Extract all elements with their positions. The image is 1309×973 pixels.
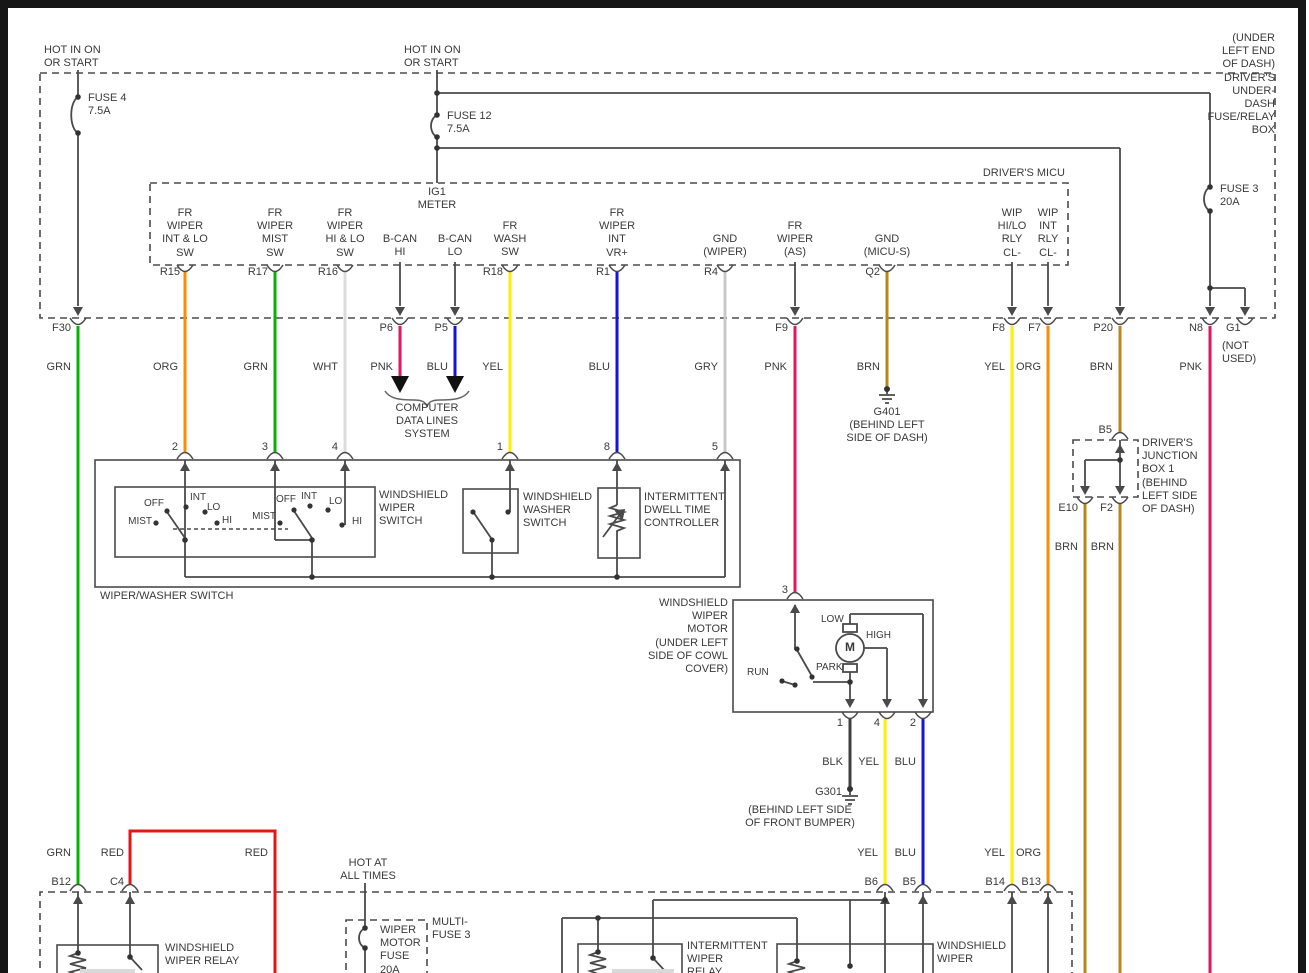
pin-number: 2 [172,441,178,454]
pin-number: 4 [874,717,880,730]
connector-id: R18 [483,266,503,279]
connector-id: N8 [1189,322,1203,335]
wiper-motor-label: WINDSHIELD WIPER MOTOR (UNDER LEFT SIDE … [648,597,728,676]
connector-id: F30 [52,322,71,335]
colored-wires [78,272,1210,973]
switch-pos-off: OFF [144,498,164,509]
connector-id: R15 [160,266,180,279]
motor-park-label: PARK [816,662,843,673]
wire-color-label: GRN [244,361,268,374]
wire-color-label: BLU [895,756,916,769]
switch-pos-mist: MIST [252,511,276,522]
wire-color-label: YEL [857,847,878,860]
pin-number: 3 [262,441,268,454]
connector-id: B6 [865,876,878,889]
wiring-diagram-lines [0,0,1309,973]
wiring-diagram-page: HOT IN ON OR START HOT IN ON OR START (U… [0,0,1309,973]
motor-m-symbol: M [845,640,855,654]
switch-pos-hi: HI [222,515,232,526]
micu-pin-label: FR WIPER (AS) [777,220,813,260]
connector-id: F7 [1028,322,1041,335]
wire-color-label: BLK [822,756,843,769]
pin-number: 1 [497,441,503,454]
windshield-wiper-switch-label: WINDSHIELD WIPER SWITCH [379,489,448,529]
wire-color-label: BLU [427,361,448,374]
wire-color-label: YEL [482,361,503,374]
hot-at-all-times-label: HOT AT ALL TIMES [340,857,396,883]
wire-color-label: BRN [857,361,880,374]
connector-id: G1 [1226,322,1241,335]
wire-color-label: BLU [589,361,610,374]
connector-id: C4 [110,876,124,889]
windshield-wiper-relay2-label: WINDSHIELD WIPER [937,940,1006,966]
g301-ground-id: G301 [815,786,842,799]
connector-id: B12 [51,876,71,889]
wire-color-label: BRN [1090,361,1113,374]
wire-color-label: ORG [1016,847,1041,860]
hot-in-on-mid-label: HOT IN ON OR START [404,44,461,70]
connector-id: R17 [248,266,268,279]
wire-color-label: YEL [984,361,1005,374]
switch-pos-int: INT [301,491,317,502]
pin-number: 3 [782,584,788,597]
wire-color-label: YEL [858,756,879,769]
motor-low-label: LOW [821,614,844,625]
connector-id: R4 [704,266,718,279]
connector-symbols [70,265,1253,891]
wire-color-label: BLU [895,847,916,860]
computer-data-lines-label: COMPUTER DATA LINES SYSTEM [396,402,459,442]
fuse12-label: FUSE 12 7.5A [447,110,492,136]
connector-id: P5 [435,322,448,335]
wire-color-label: GRN [47,847,71,860]
wiper-washer-switch-label: WIPER/WASHER SWITCH [100,590,233,603]
windshield-wiper-relay-label: WINDSHIELD WIPER RELAY [165,942,239,968]
wire-color-label: ORG [1016,361,1041,374]
fuse4-label: FUSE 4 7.5A [88,92,127,118]
pin-number: 8 [604,441,610,454]
wire-color-label: GRN [47,361,71,374]
connector-id: R16 [318,266,338,279]
switch-pos-lo: LO [207,502,220,513]
g301-location: (BEHIND LEFT SIDE OF FRONT BUMPER) [745,804,855,830]
micu-pin-label: WIP HI/LO RLY CL- [998,207,1027,260]
wire-color-label: PNK [370,361,393,374]
motor-run-label: RUN [747,667,769,678]
pin-number: 4 [332,441,338,454]
micu-pin-label: FR WIPER HI & LO SW [325,207,364,260]
wire-color-label: WHT [313,361,338,374]
micu-pin-label: B-CAN LO [438,233,472,259]
wiper-motor-fuse-label: WIPER MOTOR FUSE 20A [380,924,421,973]
connector-id: P6 [380,322,393,335]
connector-id: F9 [775,322,788,335]
switch-pos-hi: HI [352,516,362,527]
connector-id: E10 [1058,502,1078,515]
connector-id: B5 [903,876,916,889]
connector-id: B14 [985,876,1005,889]
fuse-box-title: (UNDER LEFT END OF DASH) DRIVER'S UNDER-… [1208,32,1275,138]
micu-pin-label: WIP INT RLY CL- [1038,207,1059,260]
windshield-washer-switch-label: WINDSHIELD WASHER SWITCH [523,491,592,531]
wire-color-label: RED [101,847,124,860]
connector-id: Q2 [865,266,880,279]
multi-fuse-3-label: MULTI- FUSE 3 [432,916,471,942]
connector-id: R1 [596,266,610,279]
micu-pin-label: GND (WIPER) [703,233,746,259]
wire-color-label: BRN [1055,541,1078,554]
wire-color-label: RED [245,847,268,860]
pin-number: 1 [837,717,843,730]
solid-boxes [57,460,933,973]
wire-color-label: YEL [984,847,1005,860]
connector-id: B13 [1021,876,1041,889]
connector-id: F2 [1100,502,1113,515]
switch-pos-int: INT [190,492,206,503]
motor-high-label: HIGH [866,630,891,641]
micu-pin-label: FR WIPER INT VR+ [599,207,635,260]
wire-color-label: PNK [1179,361,1202,374]
wire-color-label: ORG [153,361,178,374]
micu-pin-label: FR WIPER INT & LO SW [162,207,208,260]
g1-not-used-note: (NOT USED) [1222,340,1256,366]
micu-pin-label: FR WASH SW [494,220,527,260]
relay-coil-symbols [70,505,805,973]
wire-color-label: BRN [1091,541,1114,554]
micu-pin-label: GND (MICU-S) [864,233,910,259]
wire-color-label: GRY [694,361,718,374]
switch-pos-off: OFF [276,494,296,505]
switch-pos-lo: LO [329,496,342,507]
connector-id: F8 [992,322,1005,335]
page-frame [4,4,1302,973]
ig1-meter-label: IG1 METER [418,186,457,212]
switch-pos-mist: MIST [128,516,152,527]
connector-id: P20 [1093,322,1113,335]
pin-number: 5 [712,441,718,454]
g401-ground-label: G401 (BEHIND LEFT SIDE OF DASH) [846,406,927,446]
fuse3-label: FUSE 3 20A [1220,183,1259,209]
wire-color-label: PNK [764,361,787,374]
micu-pin-label: B-CAN HI [383,233,417,259]
hot-in-on-left-label: HOT IN ON OR START [44,44,101,70]
junction-box-label: DRIVER'S JUNCTION BOX 1 (BEHIND LEFT SID… [1142,437,1198,516]
dwell-controller-label: INTERMITTENT DWELL TIME CONTROLLER [644,491,725,531]
relay-armatures [80,969,674,973]
intermittent-wiper-relay-label: INTERMITTENT WIPER RELAY [687,940,768,973]
pin-number: 2 [910,717,916,730]
connector-id: B5 [1099,424,1112,437]
micu-pin-label: FR WIPER MIST SW [257,207,293,260]
micu-title: DRIVER'S MICU [983,167,1065,180]
